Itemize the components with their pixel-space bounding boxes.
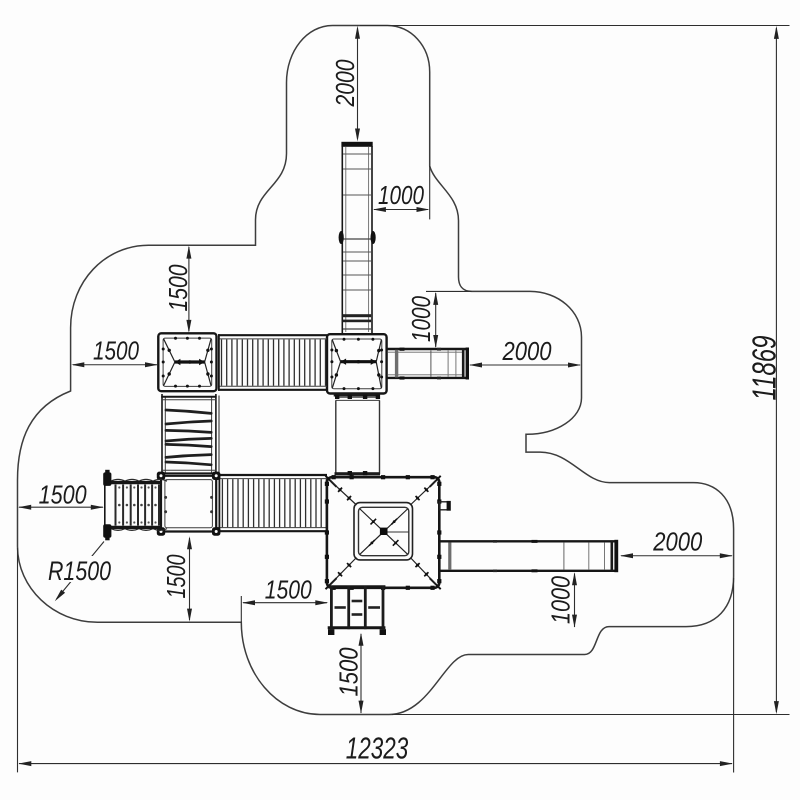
svg-text:11869: 11869 (746, 336, 783, 401)
svg-text:2000: 2000 (502, 336, 552, 366)
svg-text:1000: 1000 (406, 296, 436, 342)
svg-text:1500: 1500 (333, 647, 363, 696)
svg-text:1500: 1500 (39, 479, 87, 509)
svg-text:1500: 1500 (163, 264, 193, 311)
svg-text:1000: 1000 (545, 576, 575, 624)
svg-text:R1500: R1500 (48, 556, 111, 586)
svg-text:2000: 2000 (652, 527, 702, 557)
svg-text:1500: 1500 (265, 575, 312, 605)
svg-text:1500: 1500 (161, 554, 191, 598)
svg-text:12323: 12323 (346, 731, 409, 766)
svg-text:1000: 1000 (378, 180, 424, 210)
svg-text:1500: 1500 (93, 335, 139, 365)
svg-text:2000: 2000 (330, 59, 360, 107)
